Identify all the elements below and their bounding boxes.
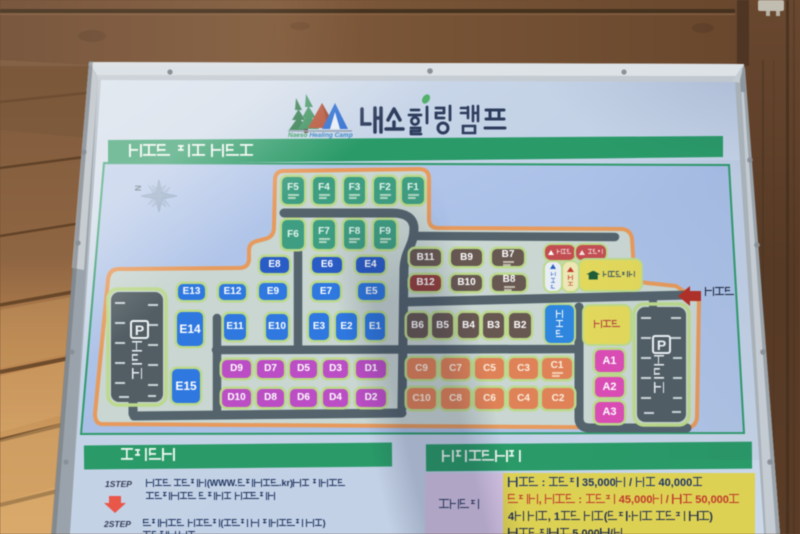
svg-text:N: N — [134, 185, 143, 191]
svg-text:P: P — [657, 337, 666, 353]
svg-text:P: P — [135, 322, 144, 338]
svg-text:Naeso Healing Camp: Naeso Healing Camp — [288, 132, 353, 139]
